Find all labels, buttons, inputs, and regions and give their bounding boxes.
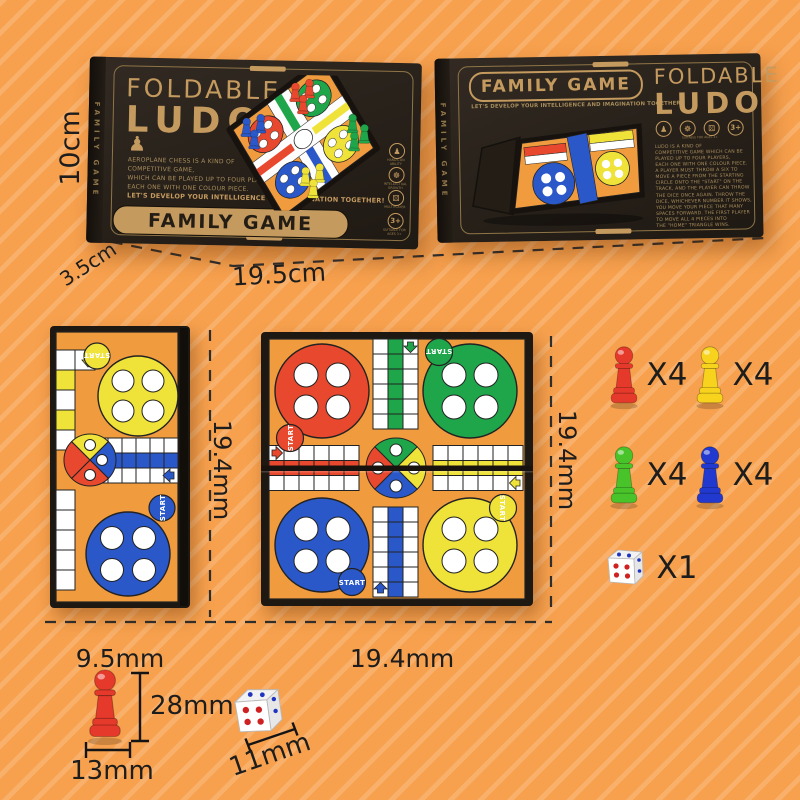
blue-start-badge: START bbox=[339, 569, 366, 596]
back-box-rules: LUDO IS A KIND OF COMPETITIVE GAME WHICH… bbox=[655, 143, 756, 230]
back-box-top-tab bbox=[592, 61, 628, 67]
svg-text:START: START bbox=[426, 347, 453, 355]
svg-text:START: START bbox=[287, 425, 295, 452]
dice-count: X1 bbox=[650, 550, 704, 586]
front-box-board-photo bbox=[213, 73, 390, 213]
pawn-size-figure bbox=[86, 668, 124, 746]
svg-text:START: START bbox=[84, 351, 111, 359]
back-box-spine-text: FAMILY GAME bbox=[439, 102, 449, 199]
dim-label-board-height-right: 19.4mm bbox=[554, 410, 580, 510]
dim-label-box-width: 19.5cm bbox=[232, 258, 325, 291]
back-box-family-game-badge: FAMILY GAME bbox=[469, 69, 643, 102]
dim-label-box-height: 10cm bbox=[56, 116, 84, 180]
fold-line bbox=[261, 466, 533, 472]
folded-yellow-home bbox=[98, 356, 178, 436]
blue-pawn-legend bbox=[694, 444, 726, 512]
dice-legend bbox=[602, 546, 646, 588]
back-box-title-line2: LUDO bbox=[654, 85, 764, 121]
dim-label-pawn-height: 28mm bbox=[150, 691, 236, 721]
dice-size-figure bbox=[228, 684, 284, 738]
red-home-circle bbox=[275, 344, 369, 438]
folded-center-circle bbox=[64, 434, 116, 486]
dim-label-pawn-base: 13mm bbox=[74, 756, 150, 786]
dice-face-icon-caption: MULTIPLAYER bbox=[380, 206, 410, 210]
folded-blue-home bbox=[86, 512, 170, 596]
back-box: FAMILY GAME FAMILY GAME LET'S DEVELOP YO… bbox=[434, 53, 763, 243]
folded-board: START START bbox=[50, 326, 190, 608]
front-box-spine: FAMILY GAME bbox=[86, 57, 106, 243]
folded-yellow-start-badge: START bbox=[84, 343, 111, 369]
age-3plus-icon-caption: SUITABLE FOR AGES 3+ bbox=[379, 229, 409, 237]
svg-text:START: START bbox=[339, 579, 366, 587]
back-box-spine: FAMILY GAME bbox=[434, 59, 452, 243]
svg-text:START: START bbox=[159, 495, 167, 522]
product-spec-image: FAMILY GAME FOLDABLE LUDO ♟ AEROPLANE CH… bbox=[0, 0, 800, 800]
red-pawn-legend bbox=[608, 344, 640, 412]
red-start-badge: START bbox=[277, 425, 304, 452]
dim-label-folded-width: 9.5mm bbox=[78, 644, 162, 672]
green-pawn-count: X4 bbox=[640, 457, 694, 493]
dim-label-board-height-left: 19.4mm bbox=[209, 420, 235, 520]
yellow-pawn-count: X4 bbox=[726, 357, 780, 393]
dim-label-open-board-width: 19.4mm bbox=[350, 644, 454, 672]
pawn-icon: ♟ bbox=[128, 131, 146, 155]
red-pawn-count: X4 bbox=[640, 357, 694, 393]
front-box-spine-text: FAMILY GAME bbox=[91, 101, 101, 198]
hands-icon-caption: HANDS-ON ABILITY bbox=[381, 159, 411, 167]
open-board: START START START START bbox=[261, 332, 533, 606]
front-box: FAMILY GAME FOLDABLE LUDO ♟ AEROPLANE CH… bbox=[86, 57, 422, 250]
svg-text:START: START bbox=[498, 495, 506, 522]
green-start-badge: START bbox=[426, 339, 453, 366]
blue-pawn-count: X4 bbox=[726, 457, 780, 493]
folded-blue-start-badge: START bbox=[149, 495, 175, 522]
yellow-pawn-legend bbox=[694, 344, 726, 412]
green-pawn-legend bbox=[608, 444, 640, 512]
yellow-start-badge: START bbox=[490, 495, 517, 522]
back-box-board-photo bbox=[463, 113, 653, 234]
front-box-top-tab bbox=[250, 66, 286, 72]
